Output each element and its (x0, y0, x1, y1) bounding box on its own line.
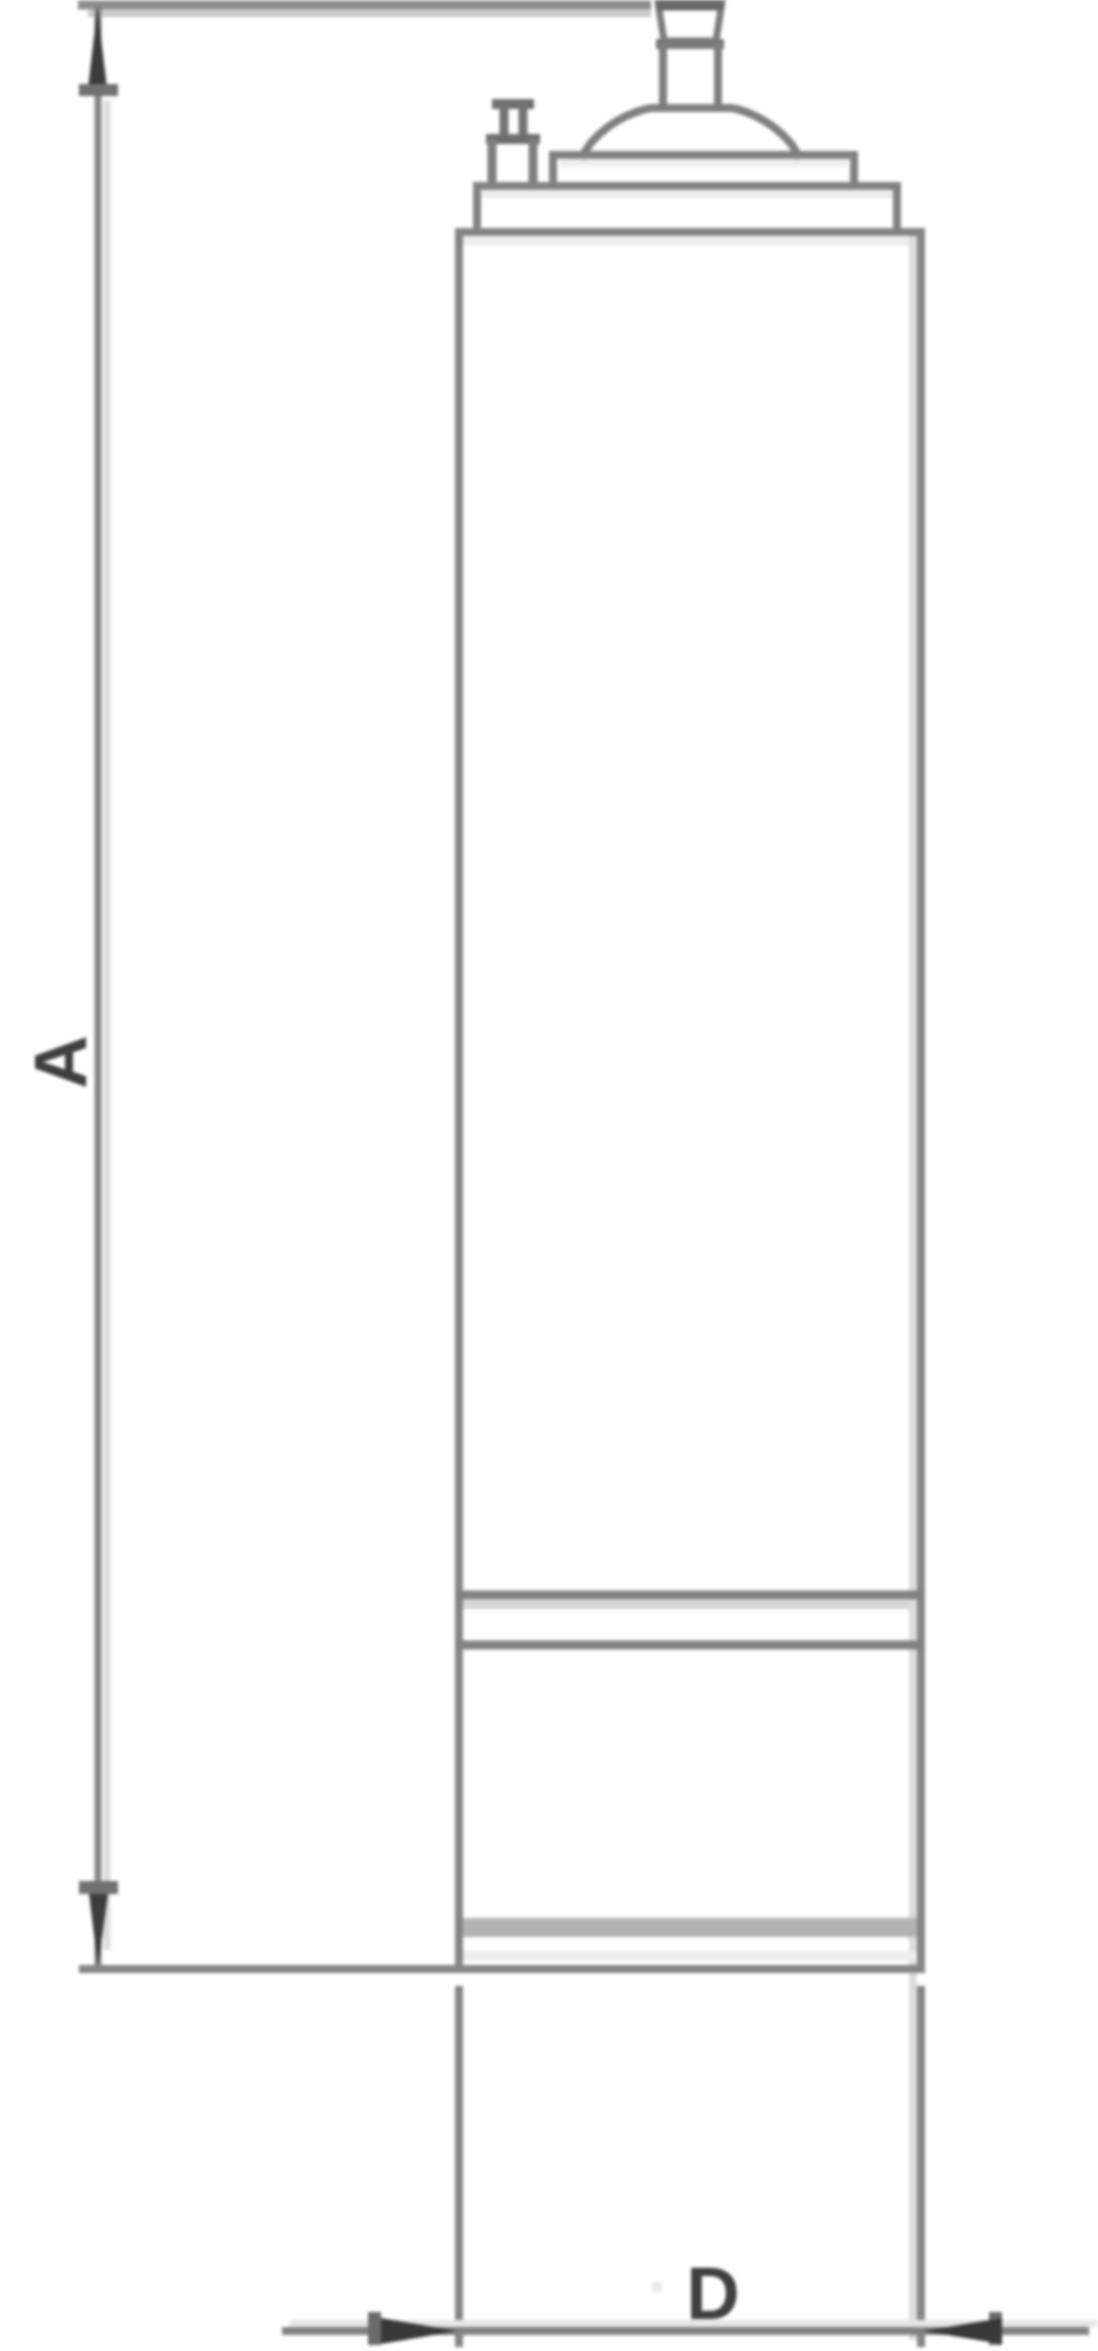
svg-text:D: D (686, 2252, 739, 2335)
svg-text:A: A (19, 1035, 102, 1088)
